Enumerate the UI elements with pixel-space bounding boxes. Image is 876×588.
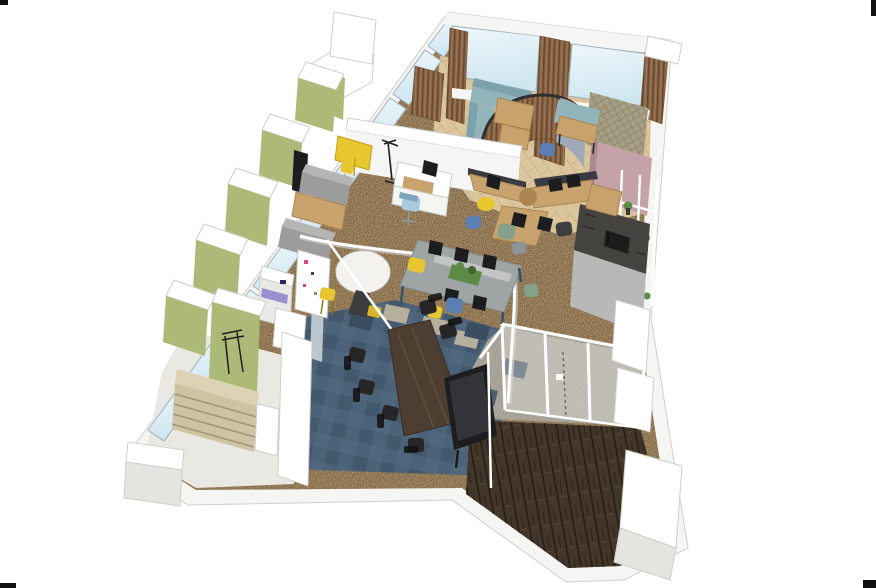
crop-mark-top-left (0, 0, 8, 5)
office-isometric-svg (0, 0, 876, 588)
meeting-partition-wall (278, 332, 312, 486)
crop-mark-bottom-right (863, 580, 876, 588)
bottom-left-corner-block-front (124, 462, 182, 506)
crop-mark-top-right (871, 0, 876, 16)
roof-block-top (330, 12, 376, 64)
floor-plan-render (0, 0, 876, 588)
storage-cabinet-magnets (295, 250, 330, 318)
top-window-right (568, 44, 648, 106)
yellow-pouf (477, 197, 495, 211)
door-plate (556, 374, 563, 380)
crop-mark-bottom-left (0, 583, 16, 588)
